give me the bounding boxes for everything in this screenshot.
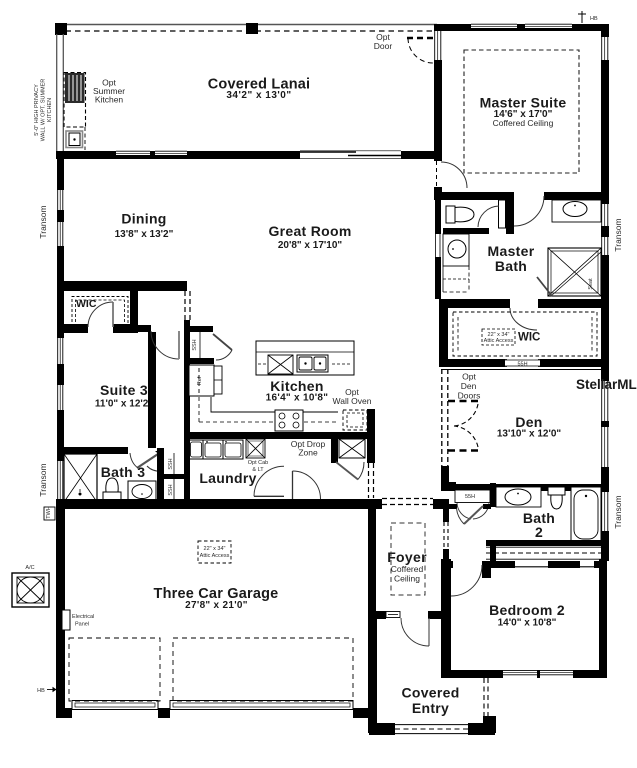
svg-text:Master: Master (488, 243, 535, 259)
svg-text:StellarMLS: StellarMLS (576, 377, 637, 392)
svg-text:WALL W/ OPT. SUMMER: WALL W/ OPT. SUMMER (41, 79, 47, 142)
svg-text:WIC: WIC (76, 298, 97, 310)
svg-text:SSH: SSH (168, 458, 174, 469)
svg-text:Attic Access: Attic Access (200, 553, 230, 559)
svg-text:Kitchen: Kitchen (95, 95, 124, 105)
svg-text:HB: HB (590, 16, 598, 22)
svg-text:11'0" x 12'2": 11'0" x 12'2" (95, 399, 153, 410)
svg-text:Bath: Bath (495, 258, 527, 274)
svg-text:Panel: Panel (75, 622, 89, 628)
svg-text:14'0" x 10'8": 14'0" x 10'8" (498, 618, 557, 629)
svg-text:Opt: Opt (462, 372, 476, 382)
svg-text:Seat: Seat (588, 278, 594, 290)
svg-text:Doors: Doors (458, 391, 481, 401)
svg-text:A/C: A/C (25, 565, 34, 571)
svg-text:HB: HB (37, 688, 45, 694)
svg-text:Door: Door (374, 41, 393, 51)
svg-text:Ceiling: Ceiling (394, 574, 420, 584)
svg-text:Transom: Transom (38, 205, 48, 238)
svg-text:TWH: TWH (46, 506, 52, 519)
svg-text:& LT: & LT (252, 467, 264, 473)
svg-text:Wall Oven: Wall Oven (333, 396, 372, 406)
svg-text:SSH: SSH (168, 484, 174, 495)
svg-text:Entry: Entry (412, 700, 449, 716)
svg-text:WIC: WIC (518, 332, 540, 344)
svg-text:KITCHEN: KITCHEN (47, 98, 53, 122)
svg-text:Great Room: Great Room (268, 223, 351, 239)
svg-text:Transom: Transom (613, 218, 623, 251)
svg-text:2: 2 (535, 524, 543, 540)
svg-text:Bedroom 2: Bedroom 2 (489, 602, 565, 618)
svg-text:55H: 55H (465, 494, 475, 500)
svg-text:Attic Access: Attic Access (484, 338, 514, 344)
svg-text:27'8" x 21'0": 27'8" x 21'0" (185, 600, 248, 611)
svg-text:Opt Cab: Opt Cab (248, 460, 268, 466)
svg-text:55H: 55H (517, 361, 527, 367)
svg-text:Electrical: Electrical (72, 614, 94, 620)
svg-text:Transom: Transom (38, 463, 48, 496)
svg-text:13'8" x 13'2": 13'8" x 13'2" (115, 229, 174, 240)
svg-text:Laundry: Laundry (199, 470, 256, 486)
svg-text:16'4" x 10'8": 16'4" x 10'8" (266, 393, 329, 404)
svg-text:Foyer: Foyer (387, 549, 427, 565)
svg-text:20'8" x 17'10": 20'8" x 17'10" (278, 240, 343, 251)
svg-text:22" x 34": 22" x 34" (204, 546, 226, 552)
svg-text:Covered: Covered (401, 685, 459, 701)
svg-text:Ref: Ref (197, 376, 203, 385)
svg-text:Coffered: Coffered (391, 564, 424, 574)
svg-text:5'-0" HIGH PRIVACY: 5'-0" HIGH PRIVACY (34, 84, 40, 136)
svg-text:Suite 3: Suite 3 (100, 382, 148, 398)
svg-text:Transom: Transom (613, 495, 623, 528)
svg-text:Coffered Ceiling: Coffered Ceiling (493, 118, 554, 128)
svg-text:Den: Den (461, 381, 477, 391)
svg-text:13'10" x 12'0": 13'10" x 12'0" (497, 429, 562, 440)
svg-text:Zone: Zone (298, 448, 318, 458)
svg-text:Dining: Dining (121, 211, 166, 227)
svg-text:34'2" x 13'0": 34'2" x 13'0" (226, 90, 291, 101)
svg-text:SSH: SSH (192, 339, 198, 350)
